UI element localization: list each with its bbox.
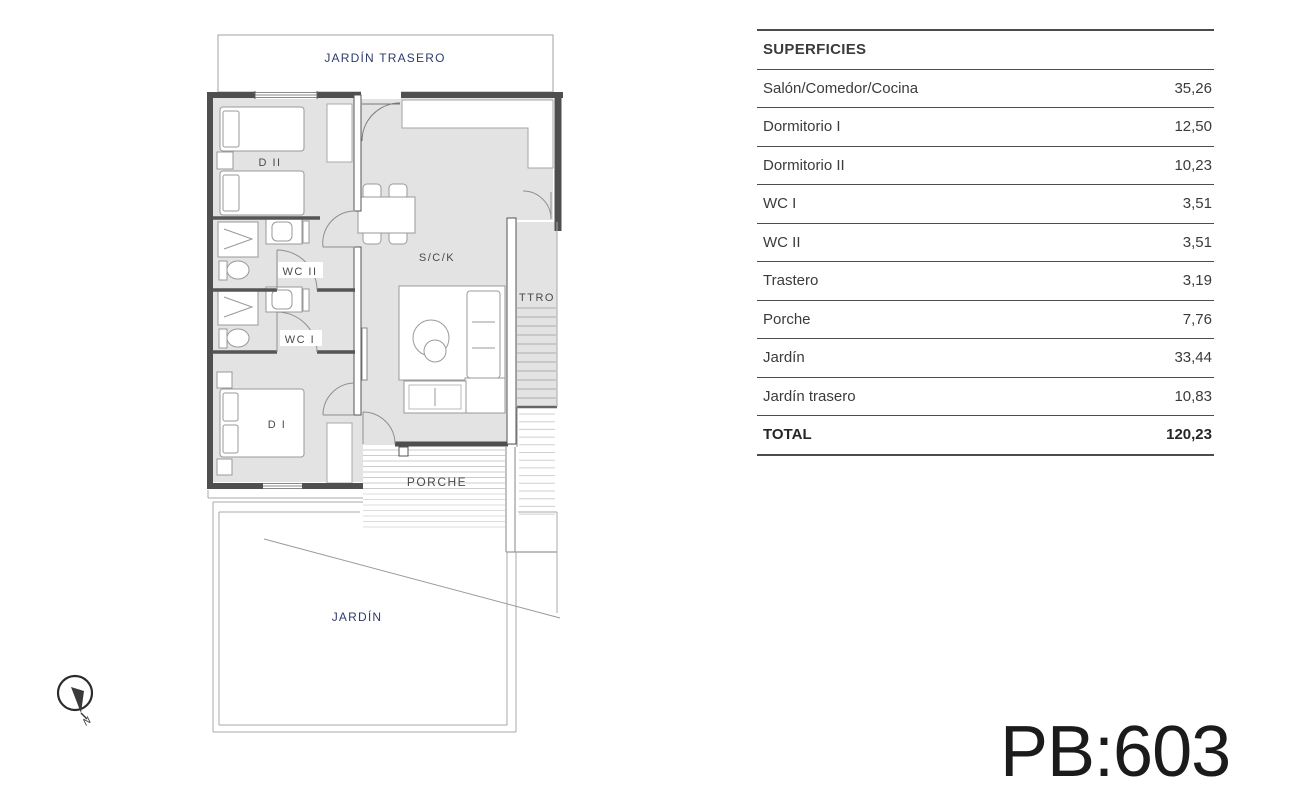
- floorplan-sheet: { "floor_plan": { "labels": { "jardin_tr…: [0, 0, 1290, 755]
- total-label: TOTAL: [763, 426, 812, 443]
- row-label: Dormitorio II: [763, 157, 845, 174]
- row-value: 33,44: [1174, 349, 1212, 366]
- row-value: 12,50: [1174, 118, 1212, 135]
- row-value: 3,51: [1183, 234, 1212, 251]
- table-row: Dormitorio II 10,23: [757, 146, 1214, 185]
- total-value: 120,23: [1166, 426, 1212, 443]
- table-row: WC I 3,51: [757, 184, 1214, 223]
- table-row: Jardín trasero 10,83: [757, 377, 1214, 416]
- bedroom2-label: D II: [258, 157, 281, 169]
- row-label: WC II: [763, 234, 801, 251]
- porch-label: PORCHE: [407, 475, 467, 489]
- table-row: Dormitorio I 12,50: [757, 107, 1214, 146]
- row-label: Salón/Comedor/Cocina: [763, 80, 918, 97]
- table-row: Porche 7,76: [757, 300, 1214, 339]
- row-label: Jardín: [763, 349, 805, 366]
- lounge-furniture: [399, 286, 505, 413]
- bedroom1-label: D I: [268, 419, 287, 431]
- row-value: 3,19: [1183, 272, 1212, 289]
- row-label: Porche: [763, 311, 811, 328]
- row-value: 10,83: [1174, 388, 1212, 405]
- floor-plan-drawing: JARDÍN TRASERO JARDÍN: [0, 0, 700, 755]
- compass-icon: N: [58, 676, 94, 728]
- table-row: Trastero 3,19: [757, 261, 1214, 300]
- table-row: Salón/Comedor/Cocina 35,26: [757, 69, 1214, 108]
- row-value: 10,23: [1174, 157, 1212, 174]
- rear-garden-label: JARDÍN TRASERO: [324, 50, 445, 65]
- wc1-label: WC I: [285, 334, 315, 346]
- rear-garden-area: JARDÍN TRASERO: [218, 35, 553, 92]
- table-header: SUPERFICIES: [763, 41, 866, 58]
- closet-d2: [327, 104, 352, 162]
- row-value: 35,26: [1174, 80, 1212, 97]
- row-value: 3,51: [1183, 195, 1212, 212]
- living-kitchen-label: S/C/K: [419, 252, 455, 264]
- table-total-row: TOTAL 120,23: [757, 415, 1214, 454]
- compass-north-label: N: [81, 715, 94, 729]
- storage-label: TTRO: [519, 292, 555, 304]
- surfaces-table: SUPERFICIES Salón/Comedor/Cocina 35,26 D…: [757, 29, 1214, 456]
- row-label: Dormitorio I: [763, 118, 841, 135]
- row-label: WC I: [763, 195, 796, 212]
- row-value: 7,76: [1183, 311, 1212, 328]
- table-row: Jardín 33,44: [757, 338, 1214, 377]
- table-header-row: SUPERFICIES: [757, 31, 1214, 69]
- wc2-label: WC II: [283, 266, 318, 278]
- table-row: WC II 3,51: [757, 223, 1214, 262]
- plan-code: PB:603: [1000, 716, 1230, 788]
- garden-label: JARDÍN: [332, 609, 383, 624]
- row-label: Jardín trasero: [763, 388, 856, 405]
- row-label: Trastero: [763, 272, 818, 289]
- garden-area: [208, 490, 560, 732]
- closet-d1: [327, 423, 352, 483]
